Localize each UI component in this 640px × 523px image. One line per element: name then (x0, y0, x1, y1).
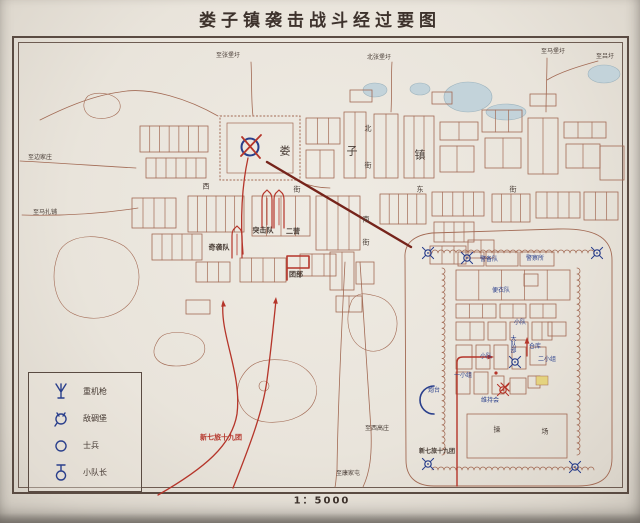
map-label: 子 (347, 146, 358, 157)
map-label: 南 (363, 217, 370, 224)
map-label: 街 (510, 187, 517, 194)
map-label: 东 (417, 187, 424, 194)
enemy-pillbox-icon (51, 407, 71, 429)
map-label: 团部 (289, 272, 303, 279)
soldier-icon (51, 435, 71, 457)
pond (444, 82, 492, 112)
map-label: 街 (363, 240, 370, 247)
legend-item-label: 敌碉堡 (83, 413, 107, 424)
legend-item: 重机枪 (29, 380, 141, 402)
inset-label: 维持会 (481, 398, 499, 404)
inset-label: 操 (494, 427, 501, 434)
map-label: 街 (294, 187, 301, 194)
legend-item-label: 士兵 (83, 440, 99, 451)
legend-item: 士兵 (29, 435, 141, 457)
map-label: 至马扎铺 (33, 210, 57, 216)
ponds (363, 65, 620, 120)
inset-label: 大队部 (509, 335, 515, 353)
squad-leader-icon (51, 462, 71, 484)
map-label: 北张堡圩 (367, 55, 391, 61)
inset-label: 新七旅十九团 (419, 449, 455, 455)
map-label: 西 (203, 184, 210, 191)
heavy-machine-gun-icon (51, 380, 71, 402)
map-label: 突击队 (253, 228, 274, 235)
map-label: 至西高庄 (365, 426, 389, 432)
scale-label: 1：5000 (294, 492, 351, 507)
map-label: 至边家庄 (28, 155, 52, 161)
map-label: 至吕圩 (596, 54, 614, 60)
map-label: 至马堡圩 (541, 49, 565, 55)
map-label: 街 (365, 163, 372, 170)
inset-label: 仓库 (529, 344, 541, 350)
map-label: 奇袭队 (209, 245, 230, 252)
map-label: 至康家屯 (336, 471, 360, 477)
map-label: 北 (365, 126, 372, 133)
pond (486, 104, 526, 120)
inset-label: 警察所 (526, 256, 544, 262)
inset-label: 警备队 (480, 257, 498, 263)
pond (588, 65, 620, 83)
legend-box: 重机枪敌碉堡士兵小队长 (28, 372, 142, 492)
inset-label: 场 (542, 429, 549, 436)
inset-label: 一小组 (454, 373, 472, 379)
legend-item-label: 小队长 (83, 467, 107, 478)
map-label: 至张堡圩 (216, 53, 240, 59)
legend-item: 小队长 (29, 462, 141, 484)
map-label: 娄 (280, 146, 291, 157)
map-label: 镇 (415, 150, 426, 161)
inset-label: 便衣队 (492, 288, 510, 294)
pillbox-symbols (422, 247, 602, 472)
pond (410, 83, 430, 95)
inset-label: 二小组 (538, 357, 556, 363)
map-label: 二营 (286, 229, 300, 236)
inset-label: 小队 (480, 354, 492, 360)
inset-label: 小队 (514, 320, 526, 326)
legend-item: 敌碉堡 (29, 407, 141, 429)
highlighted-room (536, 376, 548, 385)
map-label: 新七旅十九团 (200, 435, 242, 442)
legend-item-label: 重机枪 (83, 386, 107, 397)
town-buildings (132, 90, 624, 314)
inset-label: 炮台 (428, 388, 440, 394)
scanned-map-photo: 娄子镇袭击战斗经过要图 至张堡圩北张堡圩至马堡圩至吕圩至边家庄至马扎铺至西高庄至… (0, 0, 640, 523)
